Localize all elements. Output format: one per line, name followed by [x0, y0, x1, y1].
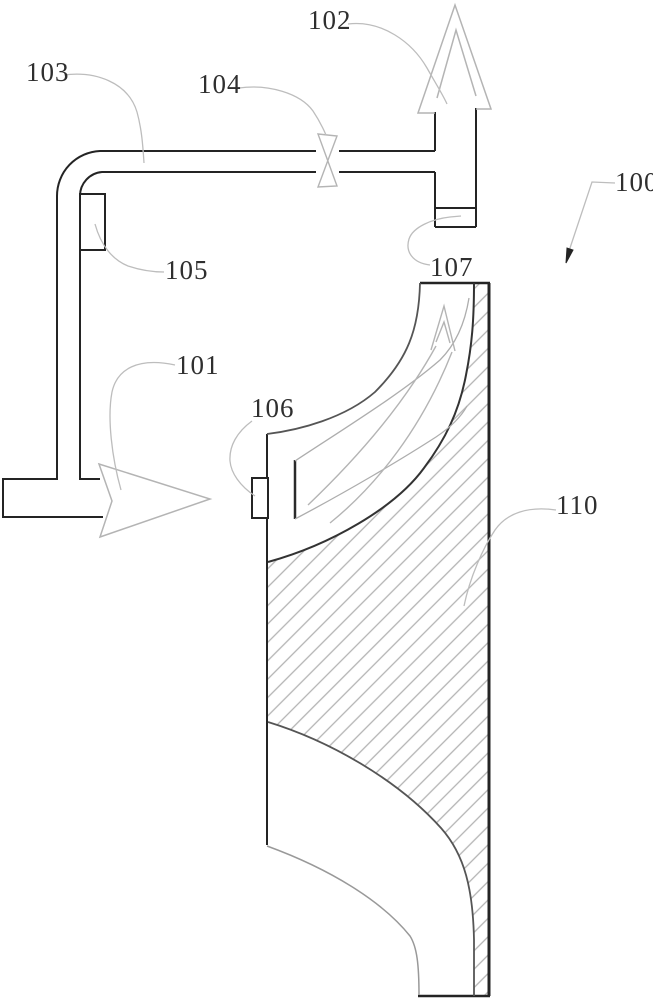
nozzle-lines [435, 208, 476, 227]
port-block-106 [252, 478, 268, 518]
pipe-inner-wall [80, 172, 435, 479]
inlet-flow-arrow [99, 464, 210, 537]
blade-upper-curve [295, 298, 469, 461]
figure-canvas: 102 103 104 100 105 107 101 106 110 [0, 0, 653, 1000]
passage-flow-arrowhead [431, 306, 455, 351]
label-107: 107 [430, 254, 474, 281]
label-105: 105 [165, 257, 209, 284]
hub-back-inner-curve [267, 846, 419, 995]
label-102: 102 [308, 7, 352, 34]
leader-100-arrowhead [566, 248, 573, 263]
label-103: 103 [26, 59, 70, 86]
valve-bowtie-icon [318, 134, 337, 187]
impeller-body-hatch [268, 283, 489, 996]
label-104: 104 [198, 71, 242, 98]
outlet-flow-arrow [418, 5, 491, 113]
leader-104 [239, 87, 326, 135]
pipe-outer-wall [3, 151, 435, 517]
piping [3, 108, 476, 517]
label-106: 106 [251, 395, 295, 422]
leader-100 [569, 182, 615, 251]
label-101: 101 [176, 352, 220, 379]
leader-102 [348, 24, 447, 104]
leader-103 [64, 74, 144, 163]
label-110: 110 [556, 492, 599, 519]
label-100: 100 [615, 169, 653, 196]
